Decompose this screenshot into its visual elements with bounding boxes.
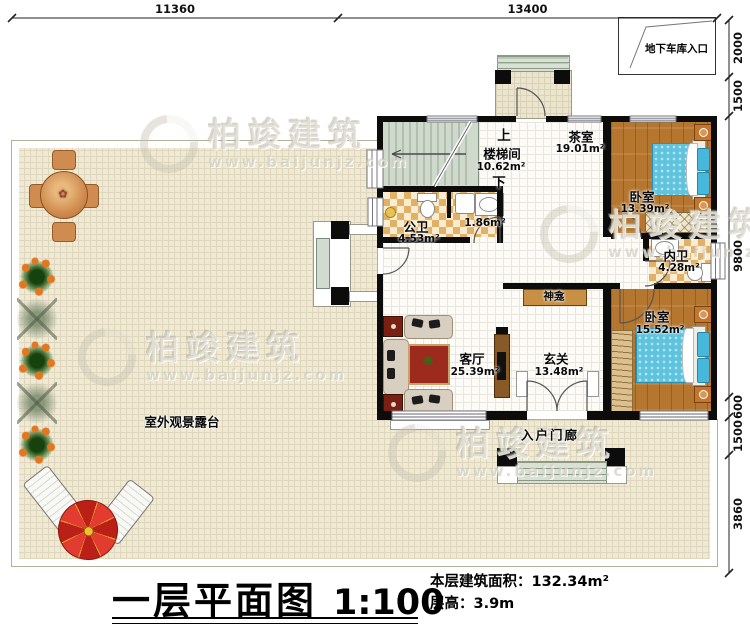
- floor-height-label: 层高：: [430, 596, 474, 612]
- dim-right-1500b: 1500: [731, 420, 745, 452]
- bath-lamp: [385, 207, 396, 218]
- dim-right-3860: 3860: [731, 498, 745, 530]
- shrine-label: 神龛: [544, 289, 565, 304]
- wash-basin: [479, 197, 499, 212]
- nightstand: [694, 124, 712, 141]
- floor-area-label: 本层建筑面积：: [430, 574, 532, 590]
- washing-machine: [455, 193, 475, 214]
- living-room-label: 客厅: [459, 349, 484, 368]
- garden-chair: [52, 222, 76, 242]
- bed-pillow: [697, 172, 710, 195]
- sofa-cushion: [428, 394, 440, 403]
- nightstand: [694, 197, 712, 214]
- foyer-label: 玄关: [543, 349, 568, 368]
- side-table-bottom: [383, 394, 403, 415]
- stair-down-label: 下: [492, 171, 506, 191]
- potted-plant: [17, 424, 57, 466]
- dim-right-9800: 9800: [731, 240, 745, 272]
- title-underline: [112, 617, 418, 624]
- nightstand: [694, 386, 712, 403]
- bay-post-top: [331, 221, 349, 239]
- bay-window-glass: [316, 238, 330, 289]
- bedroom-top-area: 13.39m²: [621, 203, 670, 215]
- bay-rail-top: [349, 224, 379, 235]
- potted-plant: [17, 256, 57, 298]
- garden-chair: [52, 150, 76, 170]
- toilet-bowl: [420, 200, 435, 218]
- dim-top-right: 13400: [338, 2, 717, 16]
- sofa-cushion: [387, 350, 395, 361]
- porch-column-base-left: [497, 466, 519, 484]
- pine-plant: [17, 382, 57, 424]
- closet: [611, 330, 633, 413]
- living-window-sill: [390, 420, 490, 430]
- bed-pillow: [697, 332, 710, 357]
- pine-plant: [17, 298, 57, 340]
- tea-room-area: 19.01m²: [556, 143, 605, 155]
- rear-porch-column-right: [554, 70, 570, 84]
- dim-right-2000: 2000: [731, 32, 745, 64]
- foyer-area: 13.48m²: [535, 366, 584, 378]
- living-room-area: 25.39m²: [451, 366, 500, 378]
- sofa-cushion: [428, 319, 440, 328]
- wardrobe: [645, 212, 707, 233]
- garage-entrance-label: 地下车库入口: [645, 41, 708, 56]
- table-flower: ✿: [58, 188, 67, 201]
- rug-plant: ❋: [423, 355, 434, 370]
- potted-plant: [17, 340, 57, 382]
- bay-post-bottom: [331, 287, 349, 305]
- porch-column-base-right: [605, 466, 627, 484]
- porch-column-left: [497, 448, 517, 466]
- floor-area-value: 132.34m²: [532, 574, 609, 590]
- bay-rail-bottom: [349, 291, 379, 302]
- porch-steps: [517, 461, 607, 484]
- bed-sheet: [682, 328, 694, 383]
- public-bath-area: 4.53m²: [398, 233, 439, 245]
- terrace-label: 室外观景露台: [144, 412, 219, 431]
- floor-plan-drawing: 地下车库入口 ❋: [0, 0, 750, 629]
- sofa-cushion: [387, 368, 395, 379]
- bedroom-bottom-area: 15.52m²: [636, 324, 685, 336]
- bed-pillow: [697, 148, 710, 171]
- nightstand: [694, 306, 712, 323]
- ensuite-area: 4.28m²: [658, 262, 699, 274]
- wash-area-label: 1.86m²: [464, 217, 505, 229]
- entry-porch-label: 入户门廊: [521, 425, 579, 444]
- dim-right-600: 600: [731, 395, 745, 419]
- floor-height-value: 3.9m: [474, 596, 515, 612]
- door-pilaster-right: [587, 371, 599, 397]
- side-table-top: [383, 316, 403, 337]
- garage-entrance-box: 地下车库入口: [618, 17, 716, 75]
- porch-column-right: [605, 448, 625, 466]
- stairwell-floor: [381, 121, 479, 188]
- floor-info: 本层建筑面积：132.34m² 层高：3.9m: [430, 571, 609, 616]
- bed-pillow: [697, 358, 710, 383]
- bedroom-bottom-label: 卧室: [644, 307, 669, 326]
- dim-right-1500a: 1500: [731, 80, 745, 112]
- stairwell-label: 楼梯间: [483, 144, 521, 163]
- rear-porch-column-left: [495, 70, 511, 84]
- door-pilaster-left: [516, 371, 528, 397]
- sofa-left: [383, 339, 409, 395]
- dim-top-left: 11360: [12, 2, 338, 16]
- stair-up-label: 上: [497, 124, 511, 144]
